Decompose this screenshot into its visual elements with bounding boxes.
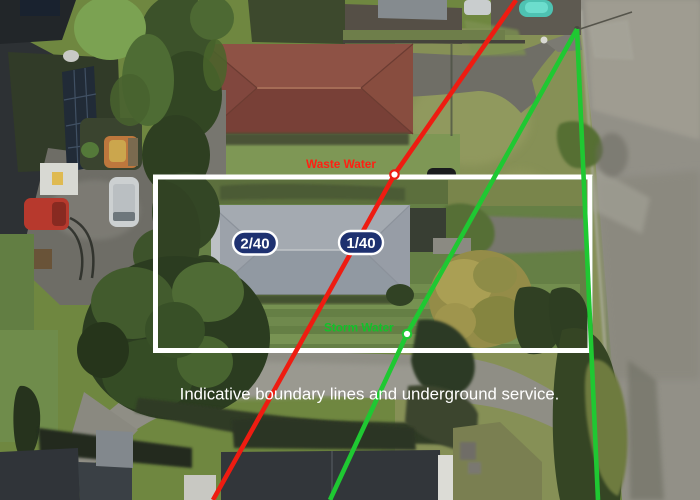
svg-text:1/40: 1/40 [346, 235, 375, 252]
svg-text:Waste Water: Waste Water [306, 157, 376, 171]
svg-text:Indicative boundary lines and: Indicative boundary lines and undergroun… [180, 385, 560, 404]
svg-text:2/40: 2/40 [240, 236, 269, 253]
svg-text:Storm Water: Storm Water [324, 321, 394, 335]
